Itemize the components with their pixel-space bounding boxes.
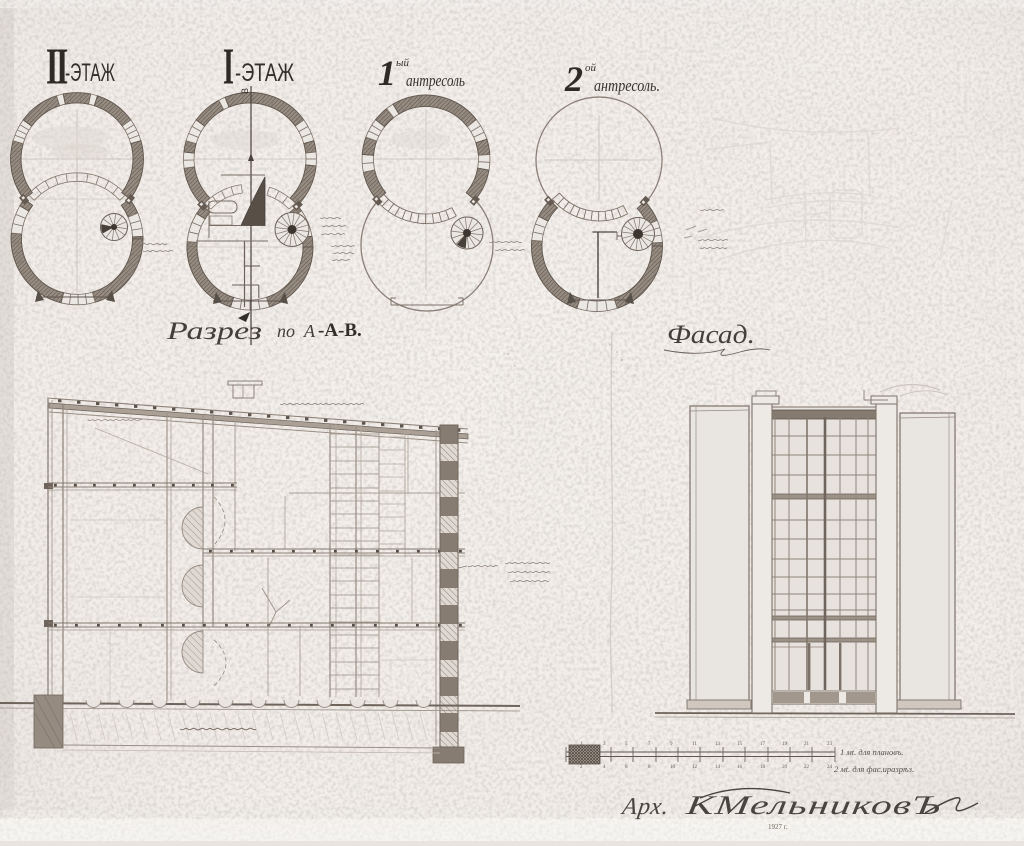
svg-text:10: 10 (670, 765, 676, 770)
svg-text:антресоль: антресоль (406, 71, 465, 90)
svg-text:1 мt. для плановъ.: 1 мt. для плановъ. (840, 747, 903, 757)
svg-text:I: I (223, 37, 234, 95)
svg-text:-ЭТАЖ: -ЭТАЖ (65, 59, 115, 87)
svg-text:23: 23 (827, 742, 833, 747)
svg-text:-А-В.: -А-В. (318, 320, 362, 341)
svg-text:21: 21 (804, 742, 810, 747)
svg-text:16: 16 (737, 765, 743, 770)
svg-text:КМельниковЪ: КМельниковЪ (683, 790, 944, 820)
svg-text:1927 г.: 1927 г. (768, 823, 788, 831)
svg-text:22: 22 (804, 765, 810, 770)
svg-text:Разрез: Разрез (166, 318, 263, 345)
svg-text:15: 15 (737, 742, 743, 747)
svg-text:по: по (277, 321, 295, 341)
svg-text:2: 2 (564, 59, 583, 99)
svg-text:В: В (240, 88, 250, 94)
svg-text:12: 12 (692, 765, 698, 770)
svg-text:антресоль.: антресоль. (594, 76, 660, 95)
svg-text:19: 19 (782, 742, 788, 747)
svg-text:18: 18 (760, 765, 766, 770)
svg-text:1: 1 (378, 53, 396, 93)
svg-text:24: 24 (827, 765, 833, 770)
svg-text:ый: ый (396, 57, 409, 69)
svg-text:ой: ой (585, 62, 597, 74)
svg-text:20: 20 (782, 765, 788, 770)
svg-text:-ЭТАЖ: -ЭТАЖ (235, 59, 294, 87)
svg-text:17: 17 (760, 742, 766, 747)
svg-text:А: А (303, 321, 316, 341)
svg-text:Арх.: Арх. (619, 794, 671, 820)
svg-text:Фасад.: Фасад. (667, 320, 755, 349)
svg-text:2 мt. для фас.иразрѣз.: 2 мt. для фас.иразрѣз. (834, 764, 914, 774)
svg-text:11: 11 (692, 742, 697, 747)
svg-text:13: 13 (715, 742, 721, 747)
svg-text:14: 14 (715, 765, 721, 770)
